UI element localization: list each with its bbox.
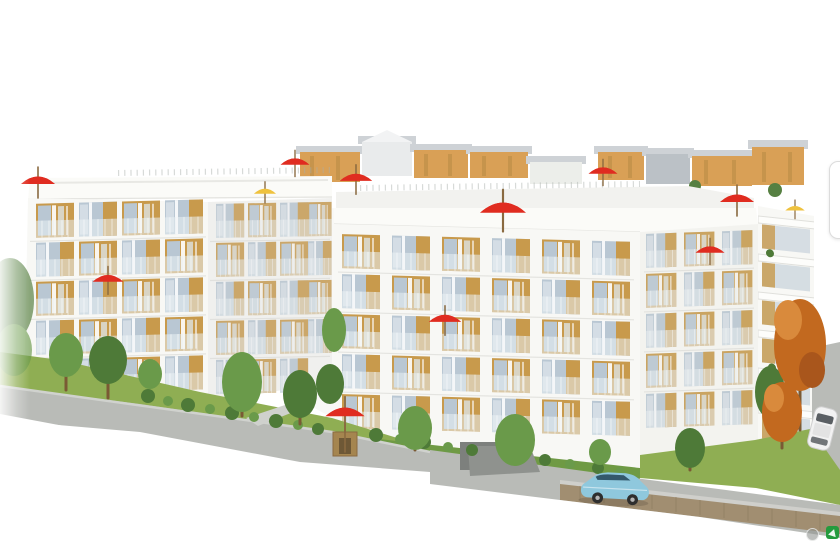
left-edge-fade (0, 130, 30, 470)
watermark-circle-icon (806, 528, 819, 541)
watermark-glyph (828, 528, 838, 537)
watermark-green-icon (826, 526, 839, 539)
right-apartment-building (300, 184, 815, 468)
page (0, 0, 840, 560)
carousel-next-button[interactable] (829, 161, 840, 239)
rendering-image (0, 0, 840, 560)
